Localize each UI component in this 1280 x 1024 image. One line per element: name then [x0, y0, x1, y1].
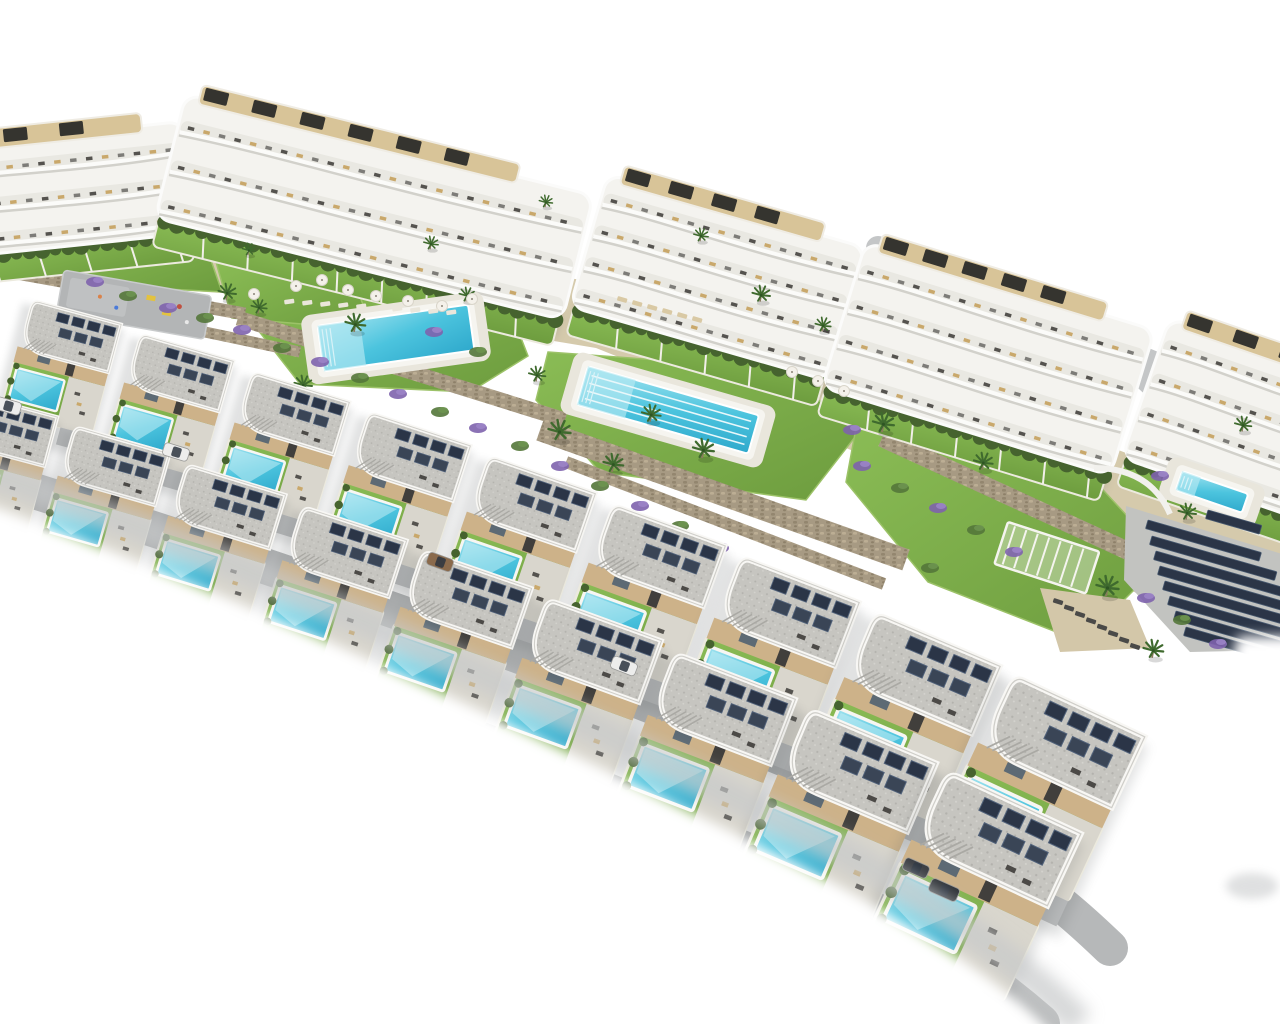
balcony-furniture — [74, 193, 81, 197]
palm-crown — [226, 292, 229, 295]
balcony-furniture — [54, 160, 61, 164]
plant-highlight — [850, 425, 860, 431]
parasol-pole — [321, 279, 323, 281]
plant-highlight — [396, 389, 406, 395]
palm-crown — [558, 430, 561, 433]
palm-crown — [760, 294, 763, 297]
balcony-furniture — [70, 158, 77, 162]
parasol-pole — [295, 285, 297, 287]
plant-highlight — [358, 373, 368, 379]
palm-crown — [536, 374, 538, 376]
parasol-pole — [347, 289, 349, 291]
balcony-furniture — [10, 200, 17, 204]
plant-highlight — [936, 503, 946, 509]
plant-highlight — [1158, 471, 1168, 477]
palm-crown — [248, 249, 250, 251]
plant-highlight — [860, 461, 870, 467]
plant-highlight — [1216, 639, 1226, 645]
scene-svg — [0, 0, 1280, 1024]
palm-crown — [982, 462, 985, 465]
plant-highlight — [432, 327, 442, 333]
palm-crown — [1242, 424, 1244, 426]
balcony-furniture — [58, 195, 65, 199]
palm-crown — [1106, 586, 1109, 589]
parasol-pole — [441, 305, 443, 307]
parasol-pole — [791, 371, 793, 373]
plant-highlight — [126, 291, 136, 297]
balcony-furniture — [38, 161, 45, 165]
parasol-pole — [843, 390, 845, 392]
palm-crown — [700, 235, 702, 237]
plant-highlight — [240, 325, 250, 331]
plant-highlight — [280, 343, 290, 349]
roof-pergola — [59, 121, 84, 136]
palm-tree — [1143, 640, 1163, 663]
plant-highlight — [558, 461, 568, 467]
balcony-furniture — [149, 150, 156, 154]
plant-highlight — [928, 563, 938, 569]
balcony-furniture — [61, 230, 68, 234]
roof-pergola — [3, 127, 28, 142]
palm-crown — [430, 243, 432, 245]
balcony-furniture — [14, 235, 21, 239]
balcony-furniture — [77, 228, 84, 232]
parasol-pole — [471, 298, 473, 300]
balcony-furniture — [0, 237, 5, 241]
plant-highlight — [598, 481, 608, 487]
balcony-furniture — [134, 151, 141, 155]
plant-highlight — [1144, 593, 1154, 599]
balcony-furniture — [141, 222, 148, 226]
balcony-furniture — [153, 185, 160, 189]
balcony-furniture — [6, 165, 13, 169]
balcony-furniture — [22, 163, 29, 167]
plant-highlight — [166, 303, 176, 309]
plant-highlight — [1180, 615, 1190, 621]
palm-crown — [258, 307, 260, 309]
palm-crown — [650, 414, 653, 417]
plant-highlight — [1012, 547, 1022, 553]
balcony-furniture — [45, 232, 52, 236]
palm-crown — [702, 449, 705, 452]
palm-crown — [354, 323, 357, 326]
balcony-furniture — [93, 227, 100, 231]
balcony-furniture — [26, 198, 33, 202]
balcony-furniture — [30, 233, 37, 237]
plant-highlight — [93, 277, 103, 283]
balcony-furniture — [118, 153, 125, 157]
ground-smudge — [1226, 873, 1278, 899]
balcony-furniture — [105, 190, 112, 194]
palm-crown — [612, 463, 615, 466]
palm-crown — [882, 423, 885, 426]
plant-highlight — [678, 521, 688, 527]
white-fade-right — [1114, 636, 1280, 1024]
plant-highlight — [318, 357, 328, 363]
parasol-pole — [817, 380, 819, 382]
balcony-furniture — [125, 223, 132, 227]
plant-highlight — [974, 525, 984, 531]
balcony-furniture — [86, 156, 93, 160]
plant-highlight — [638, 501, 648, 507]
balcony-furniture — [89, 192, 96, 196]
parasol-pole — [375, 295, 377, 297]
aerial-render — [0, 0, 1280, 1024]
parasol-pole — [407, 300, 409, 302]
plant-highlight — [438, 407, 448, 413]
balcony-furniture — [109, 225, 116, 229]
balcony-furniture — [121, 188, 128, 192]
plant-highlight — [476, 347, 486, 353]
balcony-furniture — [42, 197, 49, 201]
palm-crown — [545, 201, 547, 203]
plant-highlight — [476, 423, 486, 429]
palm-crown — [1186, 512, 1189, 515]
balcony-furniture — [102, 155, 109, 159]
palm-crown — [1152, 649, 1155, 652]
palm-crown — [822, 325, 824, 327]
balcony-furniture — [137, 187, 144, 191]
plant-highlight — [898, 483, 908, 489]
plant-highlight — [518, 441, 528, 447]
plant-highlight — [203, 313, 213, 319]
parasol-pole — [253, 293, 255, 295]
